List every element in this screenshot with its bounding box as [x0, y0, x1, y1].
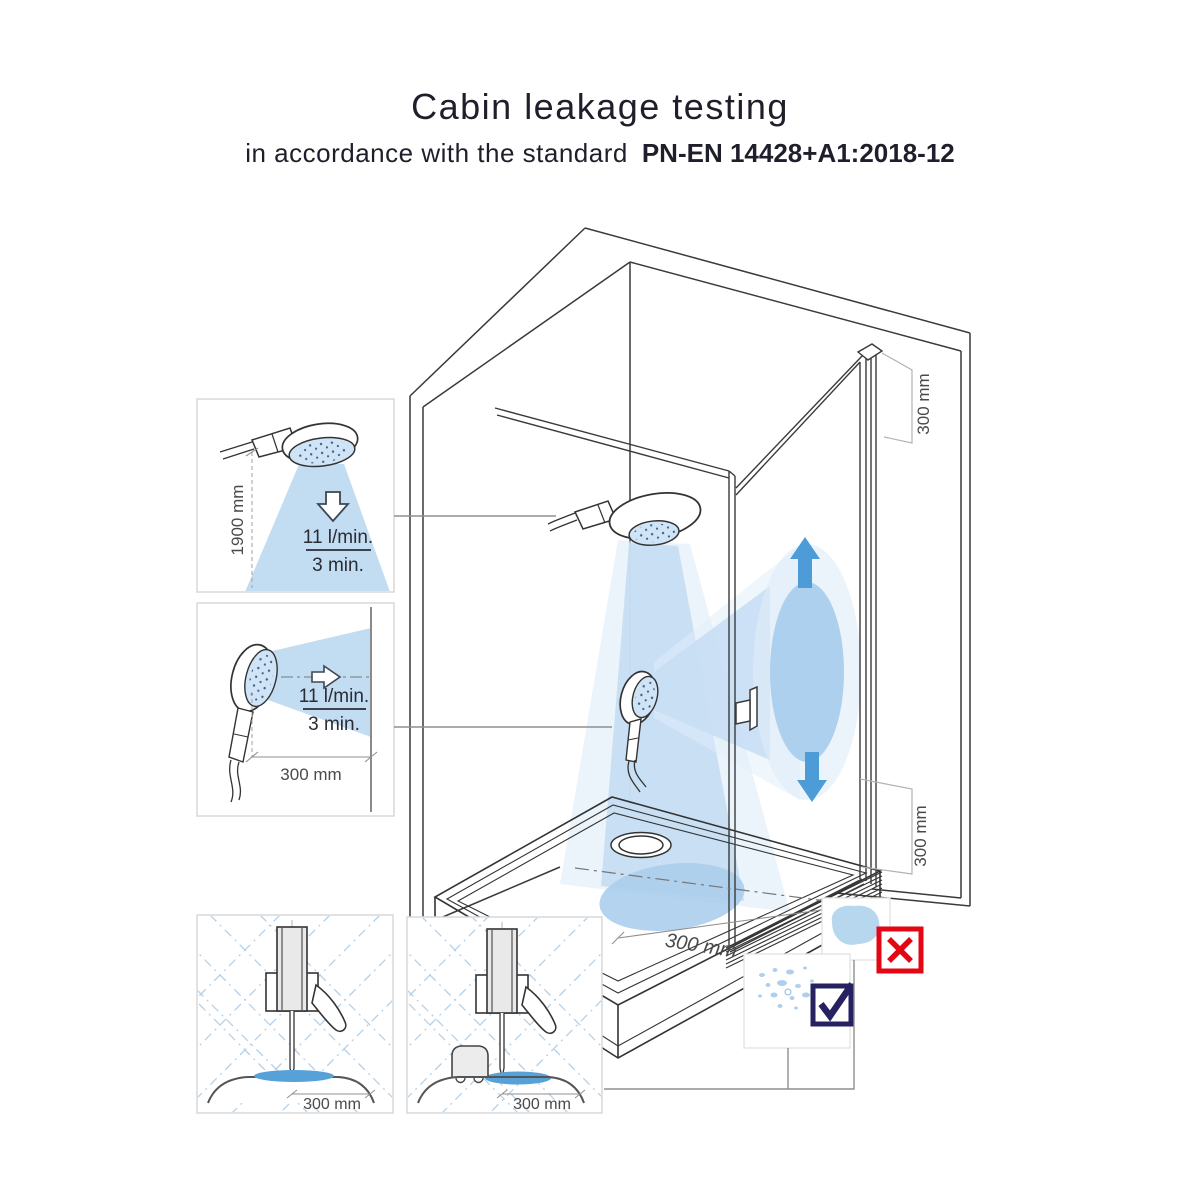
inset4-sponge-block	[452, 1046, 488, 1078]
duration-label: 3 min.	[308, 714, 360, 735]
cabin-diagram: 300 mm 300 mm 300 mm	[0, 0, 1200, 1200]
seal-distance-label-2: 300 mm	[513, 1096, 571, 1113]
duration-label: 3 min.	[312, 555, 364, 576]
inset3-water-film	[254, 1070, 334, 1082]
tray-drain	[611, 833, 671, 858]
floor-target-label: 300 mm	[664, 930, 739, 963]
fail-icon	[879, 929, 921, 971]
overhead-height-label: 1900 mm	[228, 485, 247, 556]
door-top-offset-label: 300 mm	[914, 373, 933, 434]
illustration-page: Cabin leakage testing in accordance with…	[0, 0, 1200, 1200]
seal-distance-label: 300 mm	[303, 1096, 361, 1113]
inset-horizontal-spray: 11 l/min. 3 min. 300 mm	[197, 603, 394, 816]
leak-puddle	[832, 906, 880, 945]
door-bottom-offset-label: 300 mm	[911, 805, 930, 866]
door-profile-cap	[858, 344, 882, 360]
pass-icon	[813, 984, 852, 1024]
horizontal-distance-label: 300 mm	[280, 765, 341, 784]
flow-rate-label: 11 l/min.	[303, 527, 373, 548]
dimension-door-top: 300 mm	[882, 353, 933, 443]
flow-rate-label: 11 l/min.	[299, 686, 369, 707]
inset-overhead-spray: 1900 mm 11 l/min. 3 min.	[197, 399, 394, 592]
overhead-shower-head	[548, 486, 704, 547]
